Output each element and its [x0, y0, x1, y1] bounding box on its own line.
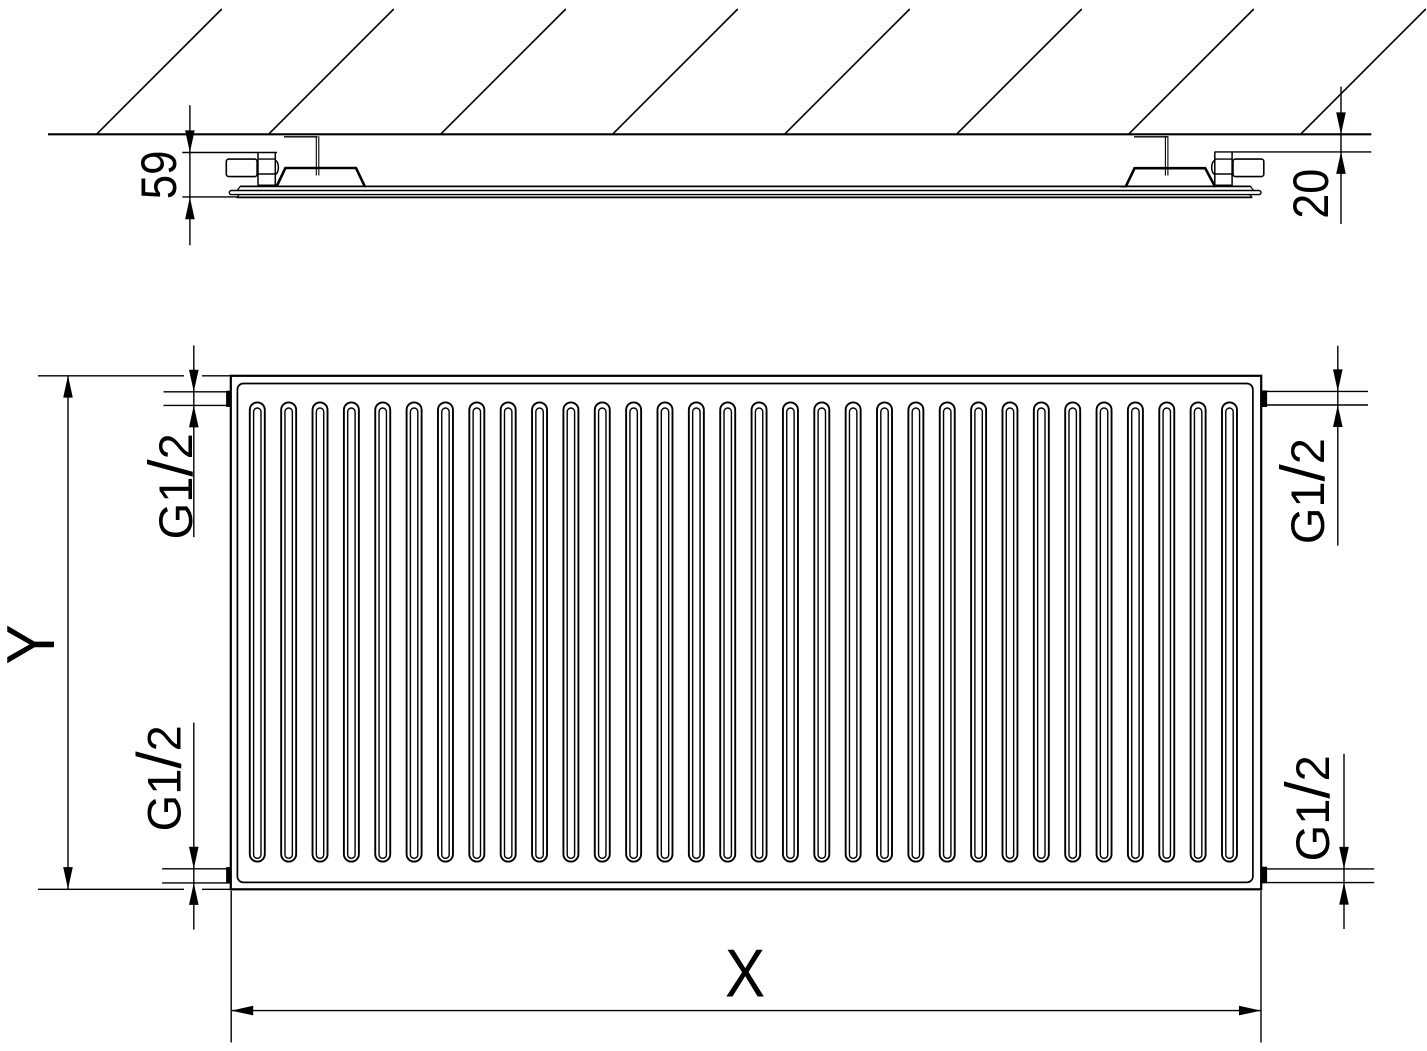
svg-text:59: 59 [130, 151, 186, 200]
svg-text:20: 20 [1284, 169, 1340, 219]
svg-text:X: X [725, 935, 765, 1011]
svg-text:Y: Y [0, 624, 69, 664]
